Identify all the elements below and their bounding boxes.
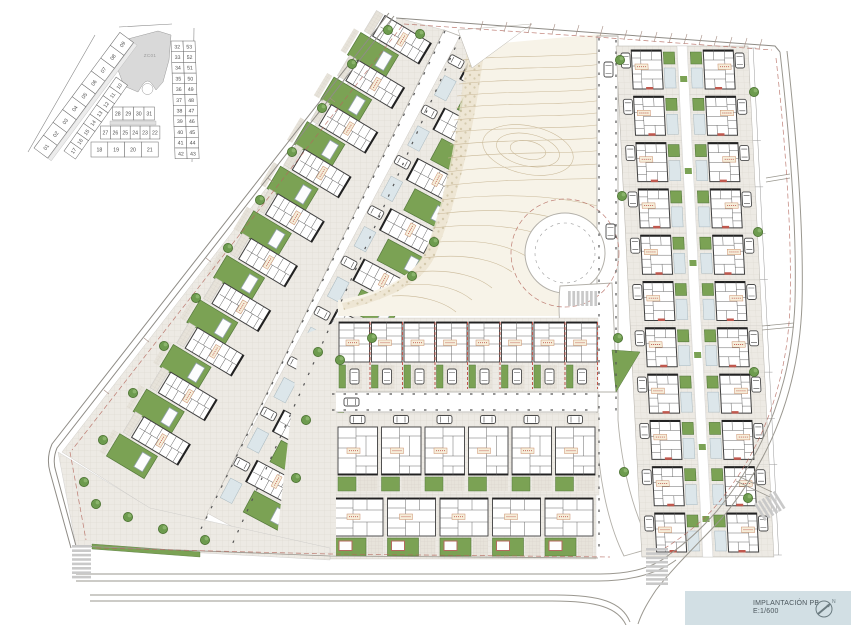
plot-number: 35 — [175, 76, 181, 82]
plot-number: 41 — [178, 141, 184, 147]
plot-number: 51 — [187, 66, 193, 72]
plot-number: 18 — [97, 148, 103, 154]
plot-number: 36 — [176, 87, 182, 93]
plot-number: 27 — [103, 131, 109, 137]
plot-number: 49 — [188, 87, 194, 93]
plot-number: 29 — [125, 112, 131, 118]
plot-number: 52 — [187, 55, 193, 61]
plot-number: 24 — [132, 131, 138, 137]
townhouse-rows — [328, 318, 599, 559]
plot-number: 30 — [136, 112, 142, 118]
plot-number: 38 — [176, 109, 182, 115]
plot-number: 53 — [186, 44, 192, 50]
plot-number: 44 — [190, 141, 196, 147]
site-plan-page: ZC01 01 02 03 04 05 06 07 08 09 17 16 15 — [0, 0, 851, 625]
plot-number: 40 — [177, 130, 183, 136]
plot-number: 26 — [112, 131, 118, 137]
plot-number: 20 — [130, 148, 136, 154]
plot-number: 50 — [187, 76, 193, 82]
plot-number: 34 — [175, 66, 181, 72]
zone-label: ZC01 — [144, 53, 157, 58]
key-plan-row-top: 28 29 30 31 — [113, 107, 155, 120]
north-label: N — [832, 599, 836, 605]
plot-number: 42 — [178, 151, 184, 157]
drawing-title: IMPLANTACIÓN PB — [753, 600, 819, 609]
north-arrow-icon: N — [813, 596, 837, 620]
plot-number: 37 — [176, 98, 182, 104]
plot-number: 43 — [190, 151, 196, 157]
plot-number: 48 — [188, 98, 194, 104]
key-plan-row-mid: 27 26 25 24 23 22 — [101, 126, 160, 139]
crossing-south — [646, 548, 668, 585]
plot-number: 25 — [122, 131, 128, 137]
plot-number: 23 — [142, 131, 148, 137]
plot-number: 32 — [174, 44, 180, 50]
right-villa-block — [616, 46, 782, 557]
plot-number: 21 — [147, 148, 153, 154]
plot-number: 39 — [177, 119, 183, 125]
key-plan: ZC01 01 02 03 04 05 06 07 08 09 17 16 15 — [28, 24, 199, 162]
key-plan-row-bottom: 18 19 20 21 — [91, 142, 158, 157]
drawing-scale: E:1/600 — [753, 608, 819, 617]
plot-number: 45 — [189, 130, 195, 136]
plot-number: 33 — [175, 55, 181, 61]
row-road — [328, 392, 598, 412]
key-plan-right-pairs: 32 53 33 52 34 51 35 50 36 49 37 48 38 4… — [171, 41, 199, 159]
plot-number: 28 — [115, 112, 121, 118]
key-plan-road-band — [110, 121, 156, 125]
plot-number: 22 — [152, 131, 158, 137]
plot-number: 19 — [113, 148, 119, 154]
plot-number: 46 — [189, 119, 195, 125]
site-plan-drawing: ZC01 01 02 03 04 05 06 07 08 09 17 16 15 — [0, 0, 851, 625]
crossing-southwest — [72, 545, 91, 578]
plot-number: 47 — [188, 109, 194, 115]
title-block: IMPLANTACIÓN PB E:1/600 N — [685, 591, 851, 625]
plot-number: 31 — [146, 112, 152, 118]
